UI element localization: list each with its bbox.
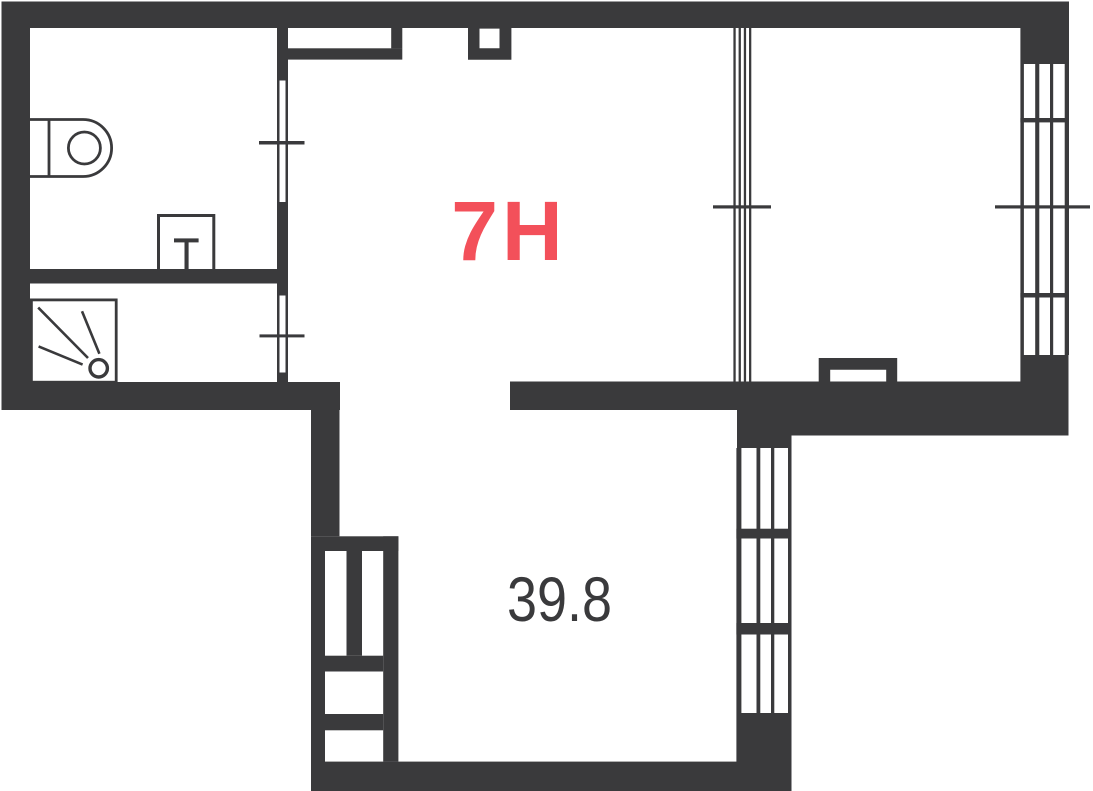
svg-text:39.8: 39.8 bbox=[507, 565, 612, 635]
svg-text:7Н: 7Н bbox=[451, 184, 566, 278]
